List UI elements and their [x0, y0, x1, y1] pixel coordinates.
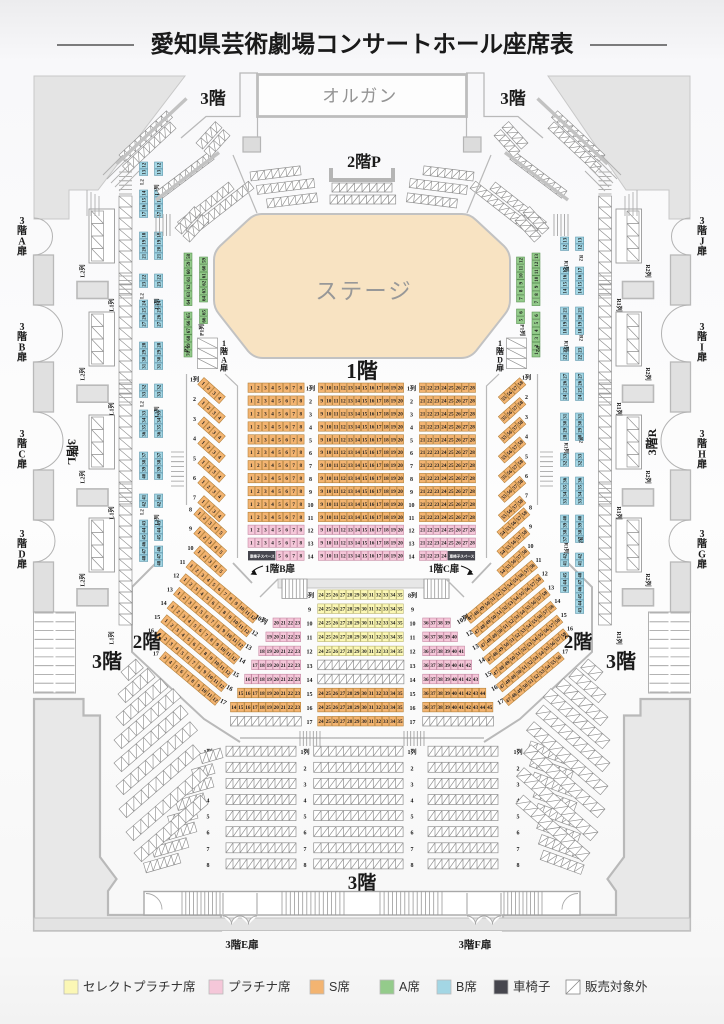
- svg-text:39: 39: [445, 663, 451, 669]
- svg-text:18: 18: [260, 705, 266, 711]
- svg-text:29: 29: [354, 719, 360, 725]
- svg-text:19: 19: [267, 635, 273, 641]
- svg-text:32: 32: [578, 460, 583, 466]
- svg-text:17: 17: [252, 677, 258, 683]
- svg-text:8: 8: [411, 863, 414, 869]
- svg-text:19: 19: [391, 386, 397, 392]
- svg-text:10: 10: [326, 554, 332, 560]
- svg-text:12: 12: [307, 650, 313, 656]
- svg-text:32: 32: [563, 460, 568, 466]
- svg-text:L2: L2: [141, 509, 146, 515]
- svg-text:30: 30: [142, 356, 147, 362]
- svg-text:12: 12: [535, 261, 540, 267]
- svg-text:25: 25: [448, 399, 454, 405]
- svg-text:40: 40: [142, 473, 147, 479]
- svg-text:31: 31: [369, 635, 375, 641]
- svg-text:7: 7: [292, 399, 295, 405]
- svg-text:11: 11: [334, 528, 339, 534]
- svg-text:8: 8: [300, 541, 303, 547]
- svg-text:1列: 1列: [522, 374, 531, 382]
- svg-text:7: 7: [304, 847, 307, 853]
- svg-text:5: 5: [410, 438, 413, 444]
- svg-text:33: 33: [383, 705, 389, 711]
- svg-text:35: 35: [397, 593, 403, 599]
- svg-text:33: 33: [157, 391, 162, 397]
- svg-text:25: 25: [326, 635, 332, 641]
- svg-text:4: 4: [525, 435, 528, 441]
- svg-text:38: 38: [438, 663, 444, 669]
- svg-text:13: 13: [348, 502, 354, 508]
- svg-text:18: 18: [384, 411, 390, 417]
- svg-text:45: 45: [487, 705, 493, 711]
- svg-text:31: 31: [369, 593, 375, 599]
- svg-text:36: 36: [157, 431, 162, 437]
- svg-text:11: 11: [409, 516, 415, 522]
- svg-text:25: 25: [326, 607, 332, 613]
- svg-text:愛知県芸術劇場コンサートホール座席表: 愛知県芸術劇場コンサートホール座席表: [151, 30, 574, 58]
- svg-text:L1列: L1列: [108, 298, 116, 311]
- svg-text:36: 36: [423, 691, 429, 697]
- svg-text:17: 17: [376, 437, 382, 443]
- svg-text:37: 37: [142, 452, 147, 458]
- svg-text:18: 18: [578, 328, 583, 334]
- svg-text:34: 34: [390, 691, 396, 697]
- svg-text:59: 59: [202, 258, 207, 264]
- svg-text:R2: R2: [578, 437, 583, 444]
- svg-text:10: 10: [326, 541, 332, 547]
- svg-text:19: 19: [391, 489, 397, 495]
- svg-text:20: 20: [398, 476, 404, 482]
- svg-text:12: 12: [341, 437, 347, 443]
- svg-text:25: 25: [448, 502, 454, 508]
- svg-text:3: 3: [525, 415, 528, 421]
- svg-text:13: 13: [142, 169, 147, 175]
- svg-text:48: 48: [578, 572, 583, 578]
- svg-text:33: 33: [563, 498, 568, 504]
- svg-text:26: 26: [456, 386, 462, 392]
- svg-text:6: 6: [285, 463, 288, 469]
- svg-text:16: 16: [245, 705, 251, 711]
- svg-text:9: 9: [320, 489, 323, 495]
- svg-text:R1列: R1列: [563, 260, 570, 271]
- svg-text:17: 17: [376, 463, 382, 469]
- svg-text:S席: S席: [329, 979, 350, 994]
- svg-text:3階: 3階: [200, 89, 226, 108]
- svg-text:11: 11: [180, 560, 186, 566]
- svg-text:24: 24: [441, 502, 447, 508]
- svg-text:20: 20: [398, 463, 404, 469]
- svg-text:18: 18: [260, 677, 266, 683]
- svg-text:21: 21: [420, 411, 426, 417]
- svg-text:3階: 3階: [500, 89, 526, 108]
- svg-text:4: 4: [271, 450, 274, 456]
- svg-text:48: 48: [157, 560, 162, 566]
- svg-text:22: 22: [427, 515, 433, 521]
- svg-text:22: 22: [427, 437, 433, 443]
- svg-text:19: 19: [391, 411, 397, 417]
- svg-text:16: 16: [369, 450, 375, 456]
- svg-text:21: 21: [420, 450, 426, 456]
- svg-text:2: 2: [257, 399, 260, 405]
- svg-text:24: 24: [441, 515, 447, 521]
- svg-text:38: 38: [157, 459, 162, 465]
- svg-text:17: 17: [307, 720, 313, 726]
- svg-text:16: 16: [157, 204, 162, 210]
- svg-text:7: 7: [292, 502, 295, 508]
- svg-text:4: 4: [411, 799, 414, 805]
- svg-text:24: 24: [318, 635, 324, 641]
- svg-text:6: 6: [525, 474, 528, 480]
- svg-text:16: 16: [578, 274, 583, 280]
- svg-text:68: 68: [187, 335, 192, 341]
- svg-text:22: 22: [288, 649, 294, 655]
- svg-text:5: 5: [278, 476, 281, 482]
- svg-text:15: 15: [362, 489, 368, 495]
- svg-text:1: 1: [250, 515, 253, 521]
- svg-text:23: 23: [434, 463, 440, 469]
- svg-text:27: 27: [463, 489, 469, 495]
- svg-text:24: 24: [318, 621, 324, 627]
- svg-text:37: 37: [430, 677, 436, 683]
- svg-text:24: 24: [441, 424, 447, 430]
- svg-text:12: 12: [410, 650, 416, 656]
- svg-text:26: 26: [333, 649, 339, 655]
- svg-text:7: 7: [292, 554, 295, 560]
- svg-text:66: 66: [187, 320, 192, 326]
- svg-text:38: 38: [142, 459, 147, 465]
- svg-text:18: 18: [384, 541, 390, 547]
- svg-text:21: 21: [578, 307, 583, 313]
- svg-text:35: 35: [397, 691, 403, 697]
- svg-text:20: 20: [398, 528, 404, 534]
- svg-text:41: 41: [459, 663, 465, 669]
- svg-text:45: 45: [563, 572, 568, 578]
- svg-text:1: 1: [250, 476, 253, 482]
- svg-text:42: 42: [466, 691, 472, 697]
- svg-text:12: 12: [173, 574, 179, 580]
- svg-text:2: 2: [257, 502, 260, 508]
- svg-text:26: 26: [333, 607, 339, 613]
- svg-text:22: 22: [427, 528, 433, 534]
- svg-text:1列: 1列: [300, 748, 309, 756]
- svg-text:7: 7: [292, 515, 295, 521]
- svg-text:P2: P2: [184, 346, 190, 352]
- svg-text:R1列: R1列: [563, 542, 570, 553]
- svg-text:4: 4: [271, 541, 274, 547]
- svg-text:30: 30: [362, 635, 368, 641]
- svg-text:41: 41: [459, 691, 465, 697]
- svg-text:26: 26: [333, 719, 339, 725]
- svg-text:45: 45: [578, 593, 583, 599]
- svg-text:13: 13: [409, 542, 415, 548]
- svg-text:8: 8: [410, 477, 413, 483]
- svg-text:7: 7: [410, 464, 413, 470]
- svg-text:10: 10: [410, 622, 416, 628]
- svg-text:11: 11: [334, 411, 339, 417]
- svg-text:22: 22: [578, 354, 583, 360]
- svg-text:20: 20: [398, 424, 404, 430]
- svg-text:1: 1: [250, 450, 253, 456]
- svg-text:1: 1: [250, 399, 253, 405]
- svg-text:28: 28: [470, 515, 476, 521]
- svg-text:40: 40: [578, 515, 583, 521]
- svg-text:17: 17: [376, 476, 382, 482]
- svg-text:30: 30: [157, 356, 162, 362]
- svg-text:17: 17: [376, 399, 382, 405]
- svg-text:4: 4: [271, 386, 274, 392]
- svg-text:27: 27: [463, 476, 469, 482]
- svg-text:6: 6: [285, 386, 288, 392]
- svg-text:7: 7: [193, 496, 196, 502]
- svg-text:15: 15: [238, 705, 244, 711]
- svg-text:39: 39: [563, 522, 568, 528]
- svg-text:21: 21: [157, 253, 162, 259]
- svg-text:38: 38: [578, 529, 583, 535]
- svg-text:1: 1: [250, 528, 253, 534]
- svg-text:36: 36: [578, 477, 583, 483]
- svg-text:43: 43: [578, 607, 583, 613]
- svg-text:19: 19: [578, 321, 583, 327]
- svg-text:20: 20: [274, 649, 280, 655]
- svg-text:L2列: L2列: [79, 470, 87, 483]
- svg-text:4: 4: [271, 502, 274, 508]
- svg-text:23: 23: [434, 515, 440, 521]
- svg-text:27: 27: [563, 373, 568, 379]
- svg-text:19: 19: [391, 528, 397, 534]
- svg-text:15: 15: [563, 281, 568, 287]
- svg-text:35: 35: [563, 484, 568, 490]
- svg-text:1列: 1列: [407, 748, 416, 756]
- svg-text:38: 38: [438, 635, 444, 641]
- svg-text:24: 24: [563, 394, 568, 400]
- svg-text:16: 16: [369, 541, 375, 547]
- svg-text:ステージ: ステージ: [315, 279, 413, 304]
- svg-text:13: 13: [307, 664, 313, 670]
- svg-text:35: 35: [397, 607, 403, 613]
- svg-text:38: 38: [438, 677, 444, 683]
- svg-text:6: 6: [285, 489, 288, 495]
- svg-text:20: 20: [274, 621, 280, 627]
- svg-text:46: 46: [142, 541, 147, 547]
- svg-text:P1列: P1列: [198, 324, 206, 336]
- svg-text:41: 41: [157, 494, 162, 500]
- svg-text:18: 18: [563, 328, 568, 334]
- svg-text:21: 21: [420, 476, 426, 482]
- svg-text:42: 42: [466, 663, 472, 669]
- svg-text:16: 16: [369, 437, 375, 443]
- svg-text:27: 27: [340, 593, 346, 599]
- svg-text:15: 15: [362, 541, 368, 547]
- svg-text:29: 29: [354, 691, 360, 697]
- svg-text:1階: 1階: [346, 359, 378, 383]
- svg-text:4: 4: [271, 489, 274, 495]
- svg-text:18: 18: [384, 476, 390, 482]
- svg-text:19: 19: [391, 502, 397, 508]
- svg-text:41: 41: [142, 494, 147, 500]
- svg-text:11: 11: [334, 463, 339, 469]
- svg-text:6: 6: [285, 450, 288, 456]
- svg-text:23: 23: [434, 411, 440, 417]
- svg-text:13: 13: [348, 386, 354, 392]
- svg-text:29: 29: [563, 427, 568, 433]
- svg-text:14: 14: [563, 288, 568, 294]
- svg-text:14: 14: [355, 399, 361, 405]
- svg-text:26: 26: [456, 450, 462, 456]
- svg-text:47: 47: [142, 548, 147, 554]
- svg-text:25: 25: [326, 593, 332, 599]
- svg-text:12: 12: [142, 162, 147, 168]
- svg-text:16: 16: [369, 554, 375, 560]
- svg-text:27: 27: [340, 649, 346, 655]
- svg-text:14: 14: [355, 437, 361, 443]
- svg-text:L2列: L2列: [79, 367, 87, 380]
- svg-text:7: 7: [411, 847, 414, 853]
- svg-text:R2: R2: [578, 255, 583, 262]
- svg-text:30: 30: [578, 420, 583, 426]
- svg-text:10: 10: [326, 399, 332, 405]
- svg-text:8: 8: [304, 863, 307, 869]
- svg-text:19: 19: [267, 705, 273, 711]
- svg-text:7: 7: [292, 463, 295, 469]
- svg-text:27: 27: [463, 437, 469, 443]
- svg-text:25: 25: [448, 541, 454, 547]
- svg-text:3: 3: [309, 412, 312, 418]
- svg-text:21: 21: [420, 463, 426, 469]
- svg-text:17: 17: [376, 489, 382, 495]
- svg-text:2: 2: [304, 766, 307, 772]
- svg-text:22: 22: [427, 502, 433, 508]
- svg-text:9: 9: [320, 502, 323, 508]
- svg-text:5: 5: [278, 424, 281, 430]
- svg-text:11: 11: [334, 502, 339, 508]
- svg-text:28: 28: [563, 434, 568, 440]
- svg-text:15: 15: [410, 692, 416, 698]
- svg-text:28: 28: [470, 541, 476, 547]
- svg-text:6: 6: [285, 554, 288, 560]
- svg-text:26: 26: [157, 314, 162, 320]
- svg-text:22: 22: [288, 691, 294, 697]
- svg-text:45: 45: [142, 534, 147, 540]
- svg-text:46: 46: [157, 546, 162, 552]
- svg-text:11: 11: [307, 636, 313, 642]
- svg-text:34: 34: [563, 491, 568, 497]
- svg-text:34: 34: [142, 417, 147, 423]
- svg-text:40: 40: [452, 705, 458, 711]
- svg-text:R2列: R2列: [644, 470, 652, 483]
- svg-text:19: 19: [142, 239, 147, 245]
- svg-text:24: 24: [441, 399, 447, 405]
- svg-text:4: 4: [271, 424, 274, 430]
- svg-text:13: 13: [348, 463, 354, 469]
- svg-text:42: 42: [142, 501, 147, 507]
- svg-text:14: 14: [307, 678, 313, 684]
- svg-text:25: 25: [448, 386, 454, 392]
- svg-text:9: 9: [410, 490, 413, 496]
- svg-text:車椅子スペース: 車椅子スペース: [250, 554, 275, 559]
- svg-text:2階: 2階: [133, 631, 162, 653]
- svg-text:42: 42: [466, 677, 472, 683]
- svg-text:19: 19: [391, 554, 397, 560]
- svg-text:38: 38: [438, 691, 444, 697]
- svg-text:14: 14: [578, 288, 583, 294]
- svg-text:15: 15: [362, 463, 368, 469]
- svg-text:10: 10: [326, 450, 332, 456]
- svg-text:9: 9: [320, 437, 323, 443]
- svg-text:2: 2: [411, 766, 414, 772]
- svg-text:23: 23: [434, 502, 440, 508]
- svg-text:9: 9: [320, 528, 323, 534]
- svg-text:24: 24: [142, 300, 147, 306]
- svg-text:21: 21: [420, 541, 426, 547]
- svg-text:A席: A席: [399, 979, 420, 994]
- svg-text:19: 19: [391, 463, 397, 469]
- svg-text:12: 12: [341, 411, 347, 417]
- svg-text:44: 44: [563, 579, 568, 585]
- svg-text:41: 41: [578, 560, 583, 566]
- svg-text:44: 44: [142, 527, 147, 533]
- svg-text:4: 4: [271, 476, 274, 482]
- svg-text:18: 18: [384, 450, 390, 456]
- svg-text:40: 40: [452, 663, 458, 669]
- svg-text:14: 14: [355, 424, 361, 430]
- svg-text:15: 15: [362, 502, 368, 508]
- svg-text:27: 27: [463, 450, 469, 456]
- svg-text:6: 6: [285, 528, 288, 534]
- svg-text:12: 12: [341, 515, 347, 521]
- svg-text:25: 25: [448, 489, 454, 495]
- svg-text:3: 3: [264, 399, 267, 405]
- svg-text:26: 26: [563, 380, 568, 386]
- svg-text:42: 42: [466, 705, 472, 711]
- svg-text:2: 2: [257, 424, 260, 430]
- svg-text:R1列: R1列: [563, 442, 570, 453]
- svg-text:16: 16: [369, 489, 375, 495]
- svg-text:10: 10: [535, 276, 540, 282]
- svg-text:35: 35: [157, 424, 162, 430]
- svg-text:25: 25: [448, 528, 454, 534]
- svg-text:20: 20: [398, 450, 404, 456]
- svg-text:17: 17: [142, 211, 147, 217]
- svg-text:28: 28: [470, 399, 476, 405]
- svg-text:L1列: L1列: [154, 407, 161, 418]
- svg-text:22: 22: [427, 541, 433, 547]
- svg-text:3: 3: [264, 411, 267, 417]
- svg-text:19: 19: [267, 663, 273, 669]
- svg-text:17: 17: [376, 386, 382, 392]
- svg-text:3: 3: [264, 450, 267, 456]
- svg-text:16: 16: [410, 706, 416, 712]
- svg-text:32: 32: [376, 621, 382, 627]
- svg-text:7: 7: [292, 489, 295, 495]
- svg-text:24: 24: [318, 719, 324, 725]
- svg-text:22: 22: [427, 386, 433, 392]
- svg-text:R1列: R1列: [615, 298, 623, 311]
- svg-text:29: 29: [354, 635, 360, 641]
- svg-text:30: 30: [362, 607, 368, 613]
- svg-text:7: 7: [292, 450, 295, 456]
- svg-text:4: 4: [271, 437, 274, 443]
- svg-text:36: 36: [423, 621, 429, 627]
- svg-text:60: 60: [187, 269, 192, 275]
- svg-text:15: 15: [362, 424, 368, 430]
- svg-text:26: 26: [333, 593, 339, 599]
- svg-text:28: 28: [347, 607, 353, 613]
- svg-text:23: 23: [434, 489, 440, 495]
- svg-text:28: 28: [470, 424, 476, 430]
- svg-text:8: 8: [300, 515, 303, 521]
- svg-text:39: 39: [445, 705, 451, 711]
- svg-text:38: 38: [438, 705, 444, 711]
